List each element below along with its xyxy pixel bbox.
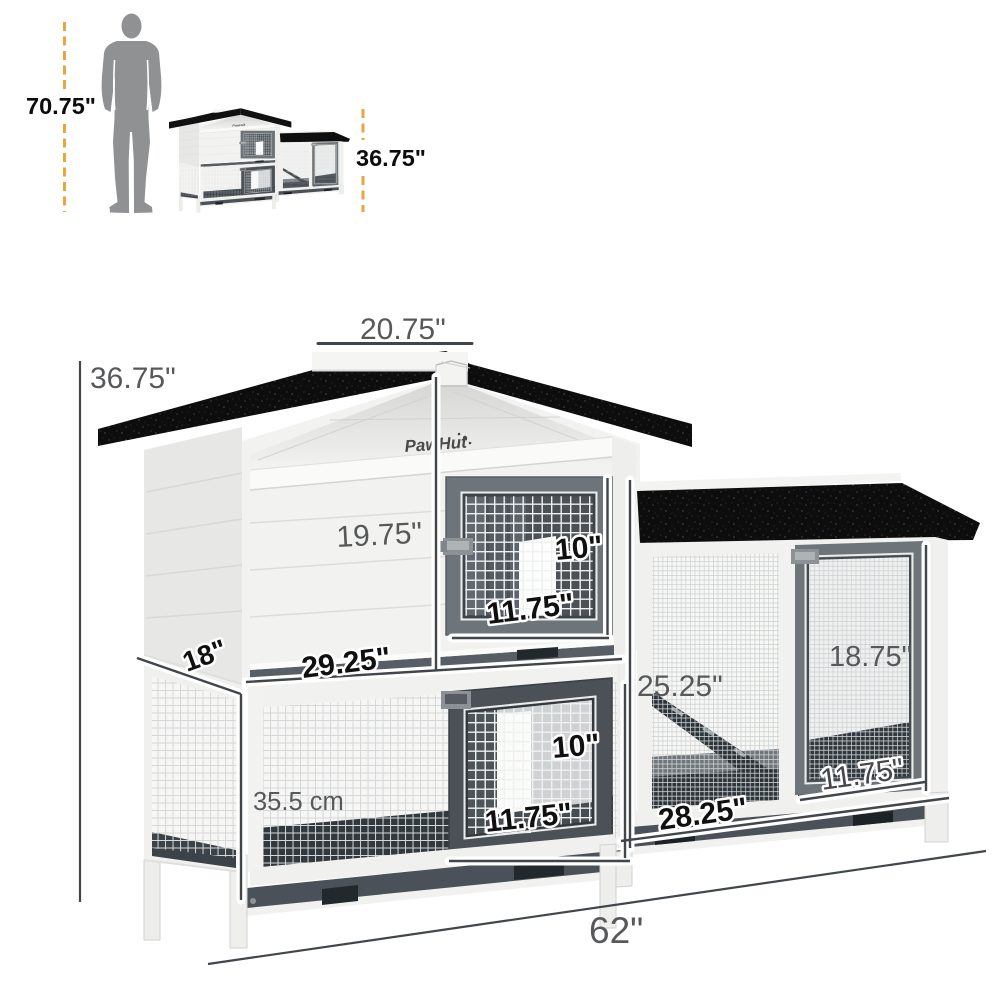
svg-text:36.75": 36.75"	[356, 145, 426, 171]
svg-text:70.75": 70.75"	[26, 93, 96, 119]
svg-text:62": 62"	[589, 910, 643, 951]
svg-text:36.75": 36.75"	[90, 362, 176, 395]
svg-text:10": 10"	[554, 530, 604, 567]
svg-text:20.75": 20.75"	[360, 313, 446, 346]
svg-text:35.5 cm: 35.5 cm	[253, 788, 344, 816]
svg-text:10": 10"	[551, 728, 601, 765]
svg-text:19.75": 19.75"	[336, 517, 423, 554]
svg-text:25.25": 25.25"	[637, 670, 723, 703]
svg-text:18.75": 18.75"	[829, 641, 912, 673]
